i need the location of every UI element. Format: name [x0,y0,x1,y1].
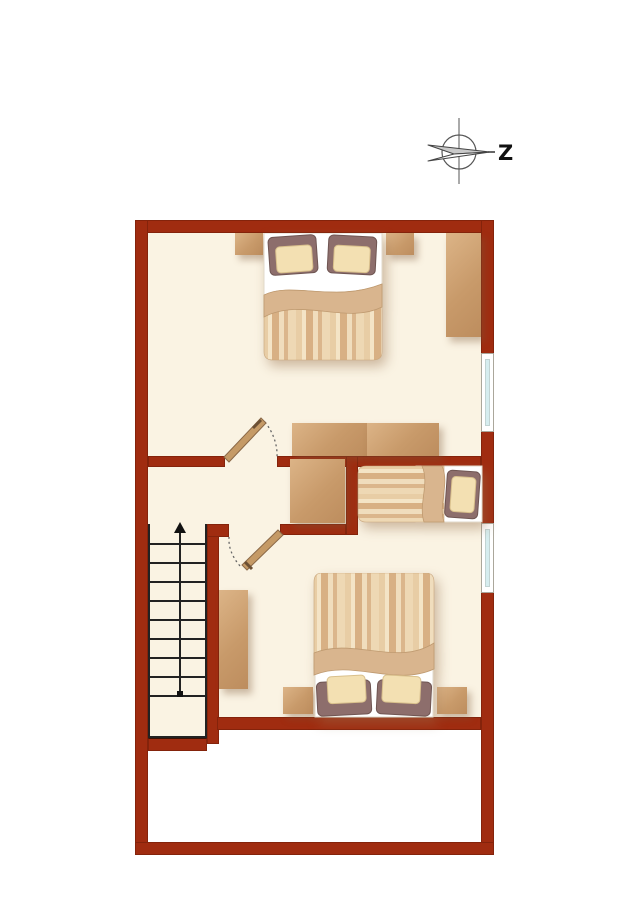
nightstand-bottom-left [283,687,313,714]
stair-tread [150,543,205,545]
window-glass [485,359,490,426]
desk-shelf [219,590,248,689]
stair-tread [150,581,205,583]
floor-plan-canvas: Z [0,0,640,905]
single-bed [356,464,484,524]
pillow [444,470,480,519]
wall-lower [280,524,346,535]
stair-up-arrow-icon [174,522,186,533]
stair-tread [150,638,205,640]
stair-walkline [179,530,181,693]
stair-walkline-start [177,691,183,697]
wardrobe-right [446,233,481,337]
stair-tread [150,562,205,564]
door-lower-bedroom [222,528,284,572]
compass-north-indicator: Z [424,114,516,190]
double-bed-bottom [311,573,437,719]
door-swing-arc [265,422,277,458]
nightstand-bottom-right [437,687,467,714]
wall-top [135,220,494,233]
compass-label: Z [498,141,513,165]
double-bed-top [262,233,384,361]
wall-landing-cap [148,737,207,751]
nightstand-top-right [386,233,414,255]
void-area-left [148,749,207,842]
wall-left [135,220,148,855]
stair-tread [150,600,205,602]
void-area-right [217,730,481,842]
window-glass [485,529,490,587]
pillow-right [327,235,377,275]
hall-dresser [290,459,345,523]
dresser-pair-left [292,423,367,456]
wall-mid-left [148,456,225,467]
wall-bottom [135,842,494,855]
dresser-pair-right [367,423,439,456]
door-upper-bedroom [220,413,284,463]
stair-tread [150,619,205,621]
door-leaf [224,418,266,462]
duvet-fold [422,466,445,522]
wall-stair [207,524,219,744]
pillow-left [268,234,319,275]
stair-tread [150,676,205,678]
window-upper-right [481,353,494,432]
window-lower-right [481,523,494,593]
door-swing-arc [229,537,240,566]
staircase [148,524,207,738]
nightstand-top-left [235,233,263,255]
stair-tread [150,657,205,659]
